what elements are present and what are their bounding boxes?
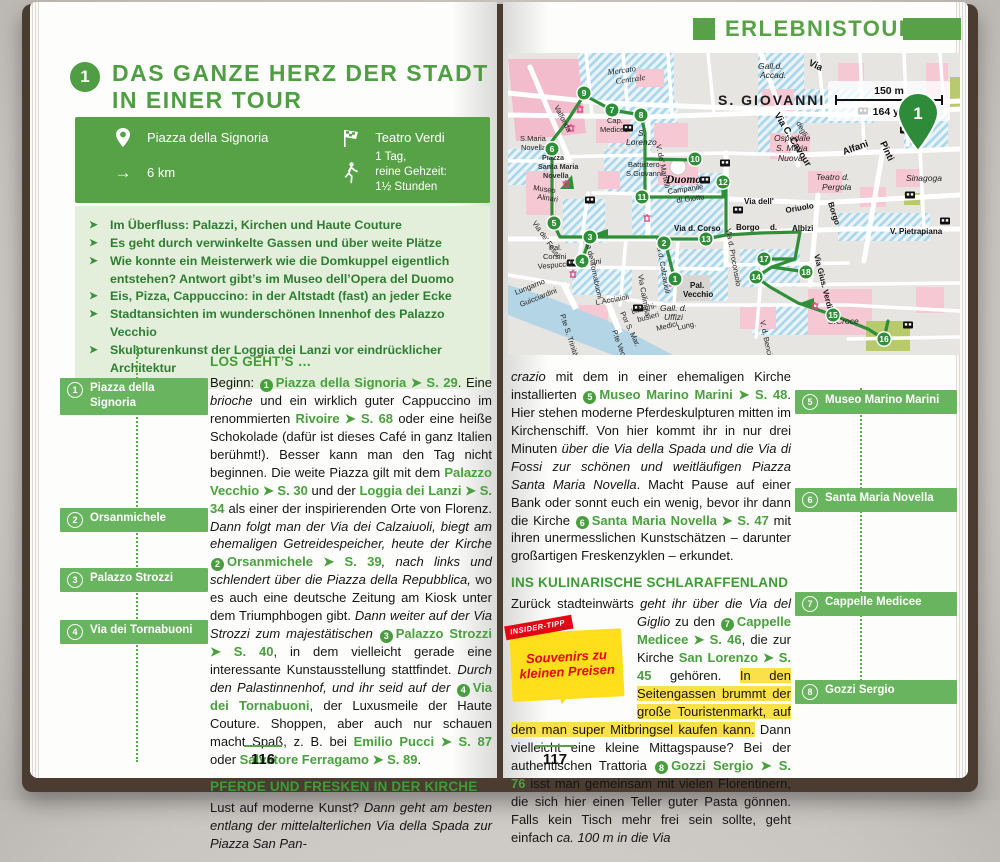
section-heading-1: LOS GEHT’S … — [210, 354, 492, 369]
route-marker-2: 2Orsanmichele — [60, 508, 208, 532]
info-end: Teatro Verdi — [303, 125, 490, 150]
text-segment: Lust auf moderne Kunst? — [210, 800, 364, 815]
map-stop-number: 14 — [751, 272, 761, 282]
marker-label: Cappelle Medicee — [825, 595, 922, 610]
marker-number: 1 — [67, 382, 83, 398]
text-segment: brioche — [210, 393, 253, 408]
paragraph: Zurück stadteinwärts geht ihr über die V… — [511, 595, 791, 846]
map-label: Via dell' — [744, 197, 774, 206]
map-stop-number: 6 — [550, 144, 555, 154]
page-number-value: 117 — [505, 751, 605, 768]
inline-stop-number: 3 — [380, 630, 393, 643]
bullet-arrow-icon: ➤ — [89, 217, 101, 235]
text-segment: Beginn: — [210, 375, 259, 390]
marker-label: Orsanmichele — [90, 511, 166, 526]
tour-info-box: Piazza della Signoria Teatro Verdi → 6 k… — [75, 117, 490, 203]
title-line-2: IN EINER TOUR — [112, 87, 489, 114]
arrow-right-icon: → — [113, 163, 133, 183]
page-title: DAS GANZE HERZ DER STADT IN EINER TOUR — [112, 60, 489, 114]
text-segment: . Eine — [458, 375, 492, 390]
map-label: Medicee — [600, 125, 628, 134]
marker-label: Palazzo Strozzi — [90, 571, 173, 586]
transit-icon — [940, 218, 950, 225]
bullet-arrow-icon: ➤ — [89, 235, 101, 253]
text-segment: Zurück stadteinwärts — [511, 596, 640, 611]
highlight-item: ➤Eis, Pizza, Cappuccino: in der Altstadt… — [89, 288, 476, 306]
tour-number-badge: 1 — [70, 62, 100, 92]
transit-icon — [905, 192, 915, 199]
highlight-item: ➤Im Überfluss: Palazzi, Kirchen und Haut… — [89, 217, 476, 235]
map-label: S.Giovanni — [626, 169, 663, 178]
text-segment: Santa Maria Novella ➤ S. 47 — [592, 513, 769, 528]
paragraph: crazio mit dem in einer ehemaligen Kirch… — [511, 368, 791, 565]
inline-stop-number: 2 — [211, 558, 224, 571]
pin-number: 1 — [913, 104, 922, 123]
transit-icon — [733, 207, 743, 214]
map-label: Pergola — [822, 182, 852, 192]
text-segment: Rivoire ➤ S. 68 — [295, 411, 393, 426]
text-segment: und der — [308, 483, 360, 498]
map-label: Nuova — [778, 153, 803, 163]
paragraph: Lust auf moderne Kunst? Dann geht am bes… — [210, 799, 492, 853]
map-label: Albizi — [792, 224, 813, 233]
text-segment: ca. 100 m in die Via — [557, 830, 671, 845]
map-stop-number: 18 — [801, 267, 811, 277]
map-label: Pal. — [690, 281, 704, 290]
map-label: Ospedale — [774, 133, 811, 143]
marker-number: 5 — [802, 394, 818, 410]
page-number-value: 116 — [213, 751, 313, 768]
text-segment: Piazza della Signoria ➤ S. 29 — [276, 375, 458, 390]
text-segment: zu — [670, 614, 693, 629]
marker-label: Museo Marino Marini — [825, 393, 939, 408]
bullet-arrow-icon: ➤ — [89, 342, 101, 378]
highlight-text: Wie konnte ein Meisterwerk wie die Domku… — [110, 253, 476, 289]
map-label: Via d. Corso — [674, 224, 721, 233]
route-marker-6: 6Santa Maria Novella — [795, 488, 957, 512]
title-line-1: DAS GANZE HERZ DER STADT — [112, 60, 489, 87]
map-stop-number: 15 — [828, 310, 838, 320]
map-label: Borgo — [736, 223, 760, 232]
highlight-text: Es geht durch verwinkelte Gassen und übe… — [110, 235, 442, 253]
bullet-arrow-icon: ➤ — [89, 288, 101, 306]
page-number-left: 116 — [213, 745, 313, 769]
marker-number: 3 — [67, 572, 83, 588]
finish-flag-icon — [341, 129, 361, 147]
duration-value: 1 Tag, reine Gehzeit: 1½ Stunden — [375, 150, 447, 195]
map-label: Novella — [521, 143, 547, 152]
text-segment: gehören. — [651, 668, 739, 683]
inline-stop-number: 6 — [576, 516, 589, 529]
page-stack-edge-left — [30, 2, 39, 778]
map-canvas: MercatoCentraleValfondaS.MariaNovellaPia… — [508, 53, 960, 355]
section-heading-3: INS KULINARISCHE SCHLARAFFENLAND — [511, 575, 791, 590]
highlight-item: ➤Es geht durch verwinkelte Gassen und üb… — [89, 235, 476, 253]
map-label: d. — [770, 223, 777, 232]
map-label: Teatro d. — [816, 172, 849, 182]
marker-number: 7 — [802, 596, 818, 612]
paragraph: Beginn: 1Piazza della Signoria ➤ S. 29. … — [210, 374, 492, 769]
map-stop-number: 2 — [662, 238, 667, 248]
inline-stop-number: 8 — [655, 761, 668, 774]
inline-stop-number: 1 — [260, 379, 273, 392]
tour-title-row: 1 DAS GANZE HERZ DER STADT IN EINER TOUR — [70, 60, 489, 114]
marker-label: Gozzi Sergio — [825, 683, 895, 698]
duration-line-1: 1 Tag, — [375, 151, 406, 163]
transit-icon — [720, 160, 730, 167]
map-label: Lorenzo — [626, 137, 657, 147]
left-text-column: LOS GEHT’S … Beginn: 1Piazza della Signo… — [210, 354, 492, 862]
map-stop-number: 7 — [610, 105, 615, 115]
map-stop-number: 8 — [639, 110, 644, 120]
distance-value: 6 km — [147, 165, 175, 180]
text-segment: Orsanmichele ➤ S. 39 — [227, 554, 382, 569]
route-marker-4: 4Via dei Tornabuoni — [60, 620, 208, 644]
route-marker-5: 5Museo Marino Marini — [795, 390, 957, 414]
text-segment: Emilio Pucci ➤ S. 87 — [354, 734, 492, 749]
duration-line-2: reine Gehzeit: — [375, 166, 447, 178]
map-stop-number: 17 — [759, 254, 769, 264]
transit-icon — [903, 322, 913, 329]
marker-number: 6 — [802, 492, 818, 508]
highlight-text: Stadtansichten im wunderschönen Innenhof… — [110, 306, 476, 342]
inline-stop-number: 7 — [721, 618, 734, 631]
page-number-right: 117 — [505, 745, 605, 769]
marker-number: 2 — [67, 512, 83, 528]
start-label: Piazza della Signoria — [147, 130, 268, 145]
map-stop-number: 16 — [879, 334, 889, 344]
map-label: Sinagoga — [906, 173, 942, 183]
map-stop-number: 4 — [580, 256, 585, 266]
map-label: S. GIOVANNI — [718, 92, 825, 108]
route-marker-8: 8Gozzi Sergio — [795, 680, 957, 704]
highlight-text: Im Überfluss: Palazzi, Kirchen und Haute… — [110, 217, 402, 235]
map-stop-number: 10 — [690, 154, 700, 164]
info-duration: 1 Tag, reine Gehzeit: 1½ Stunden — [303, 150, 490, 195]
map-label: S. Maria — [776, 143, 808, 153]
map-label: Santa Maria — [538, 162, 579, 171]
duration-line-3: 1½ Stunden — [375, 181, 437, 193]
bullet-arrow-icon: ➤ — [89, 306, 101, 342]
marker-label: Santa Maria Novella — [825, 491, 934, 506]
insider-tip-text: Souvenirs zu kleinen Preisen — [509, 628, 624, 702]
text-segment: als einer der inspirierenden Orte von Fl… — [224, 501, 492, 516]
map-label: Battistero — [628, 160, 660, 169]
map-label: Pal. — [549, 243, 562, 252]
map-label: S.Maria — [520, 134, 547, 143]
location-pin-icon — [113, 128, 133, 148]
page-left: 1 DAS GANZE HERZ DER STADT IN EINER TOUR… — [30, 2, 497, 778]
route-marker-3: 3Palazzo Strozzi — [60, 568, 208, 592]
tour-map: MercatoCentraleValfondaS.MariaNovellaPia… — [508, 53, 960, 355]
highlight-item: ➤Wie konnte ein Meisterwerk wie die Domk… — [89, 253, 476, 289]
text-segment: Museo Marino Marini ➤ S. 48 — [599, 387, 787, 402]
map-stop-number: 1 — [673, 274, 678, 284]
route-dotted-line-right — [860, 388, 862, 704]
map-label: V. Pietrapiana — [890, 227, 943, 236]
route-marker-1: 1Piazza della Signoria — [60, 378, 208, 415]
walking-person-icon — [341, 162, 361, 184]
insider-tip-bubble: Souvenirs zu kleinen PreisenINSIDER-TIPP — [509, 616, 630, 720]
marker-number: 8 — [802, 684, 818, 700]
inline-stop-number: 4 — [457, 684, 470, 697]
map-label: Vecchio — [683, 290, 713, 299]
route-marker-7: 7Cappelle Medicee — [795, 592, 957, 616]
highlight-item: ➤Stadtansichten im wunderschönen Innenho… — [89, 306, 476, 342]
map-label: Novella — [543, 171, 570, 180]
map-stop-number: 3 — [588, 232, 593, 242]
info-distance: → 6 km — [75, 150, 303, 195]
map-duomo-dome — [670, 159, 686, 175]
header-accent-right — [903, 18, 961, 40]
text-segment: . — [417, 752, 421, 767]
right-text-column: crazio mit dem in einer ehemaligen Kirch… — [511, 368, 791, 856]
page-number-rule — [536, 745, 574, 748]
bullet-arrow-icon: ➤ — [89, 253, 101, 289]
page-right: ERLEBNISTOUREN — [503, 2, 968, 778]
map-stop-number: 12 — [718, 177, 728, 187]
text-segment: den — [693, 614, 719, 629]
map-stop-number: 5 — [552, 218, 557, 228]
map-stop-number: 11 — [638, 192, 647, 202]
text-segment: Dann folgt man der Via dei Calzaiuoli, b… — [210, 519, 492, 552]
scale-metric: 150 m — [874, 85, 904, 97]
page-number-rule — [244, 745, 282, 748]
book-photo: 1 DAS GANZE HERZ DER STADT IN EINER TOUR… — [0, 0, 1000, 800]
transit-icon — [585, 197, 595, 204]
marker-label: Via dei Tornabuoni — [90, 623, 192, 638]
info-start: Piazza della Signoria — [75, 125, 303, 150]
highlight-text: Eis, Pizza, Cappuccino: in der Altstadt … — [110, 288, 452, 306]
end-label: Teatro Verdi — [375, 130, 444, 145]
header-accent-left — [693, 18, 715, 40]
marker-label: Piazza della Signoria — [90, 381, 202, 411]
map-stop-number: 9 — [582, 88, 587, 98]
map-label: Uffizi — [664, 312, 684, 322]
text-segment: crazio — [511, 369, 546, 384]
inline-stop-number: 5 — [583, 391, 596, 404]
marker-number: 4 — [67, 624, 83, 640]
section-heading-2: PFERDE UND FRESKEN IN DER KIRCHE — [210, 779, 492, 794]
map-stop-number: 13 — [701, 234, 711, 244]
map-label: Accad. — [759, 70, 786, 80]
